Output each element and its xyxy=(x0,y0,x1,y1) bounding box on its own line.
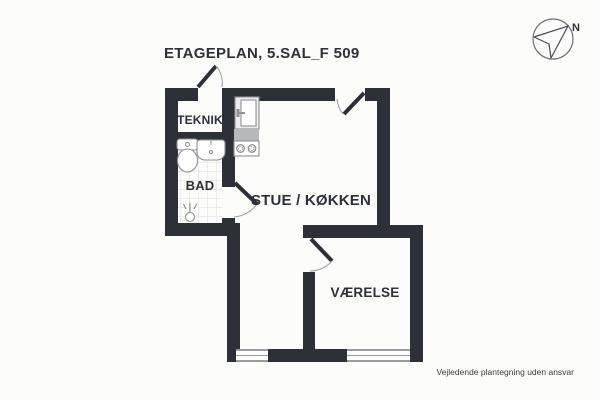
wall-top-middle xyxy=(223,88,335,101)
bath-sink-symbol xyxy=(197,139,225,160)
toilet-symbol xyxy=(177,139,198,172)
door-leaf xyxy=(311,239,332,261)
counter-symbol xyxy=(234,129,259,141)
room-label-vaerelse: VÆRELSE xyxy=(324,285,406,300)
door-entrance-teknik xyxy=(198,66,222,87)
door-arc xyxy=(310,261,332,271)
wall-right-lower xyxy=(410,225,423,362)
room-label-bad: BAD xyxy=(165,178,235,193)
compass-north-label: N xyxy=(572,22,580,34)
room-label-teknik: TEKNIK xyxy=(160,113,240,127)
wall-lower-left xyxy=(227,223,240,362)
disclaimer-text: Vejledende plantegning uden ansvar xyxy=(436,367,574,377)
door-leaf xyxy=(344,93,364,114)
shower-symbol xyxy=(184,203,197,222)
plan-title: ETAGEPLAN, 5.SAL_F 509 xyxy=(164,45,360,62)
wall-bad-stue-divider-upper xyxy=(222,88,235,187)
door-vaerelse xyxy=(310,239,332,271)
door-entrance-stue xyxy=(337,93,364,114)
window-symbol-vaerelse xyxy=(347,349,410,362)
window-symbol-stue xyxy=(236,349,268,362)
door-leaf xyxy=(198,66,216,87)
compass-north-icon xyxy=(533,19,573,59)
door-arc xyxy=(337,99,343,114)
door-arc xyxy=(216,66,222,87)
floor-plan: ETAGEPLAN, 5.SAL_F 509 xyxy=(0,0,600,400)
stove-symbol xyxy=(234,141,259,156)
wall-left xyxy=(165,88,178,236)
wall-vaerelse-top xyxy=(303,225,423,238)
wall-right-upper xyxy=(377,88,390,238)
room-label-stue-kokken: STUE / KØKKEN xyxy=(248,192,374,209)
